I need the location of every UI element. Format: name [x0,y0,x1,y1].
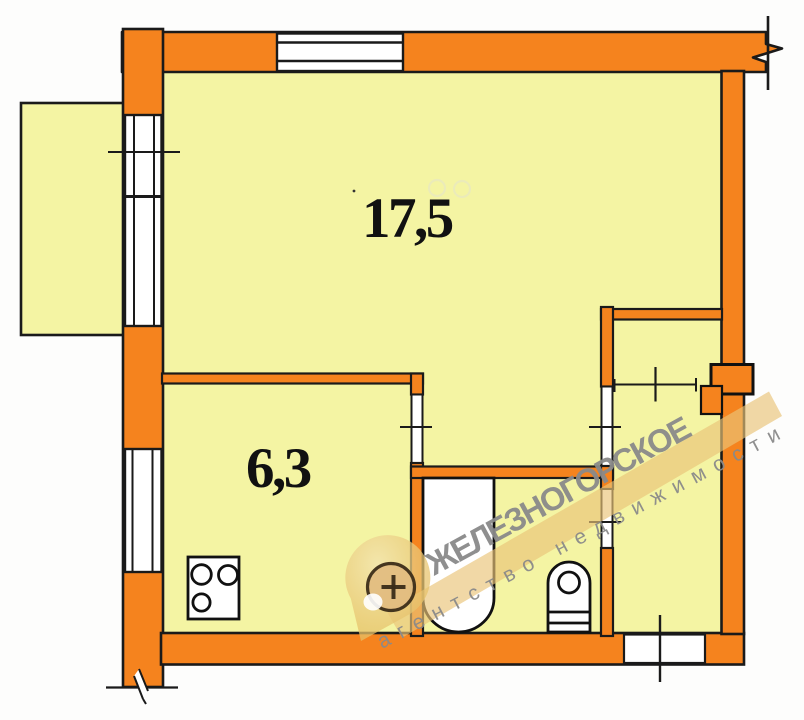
svg-text:6,3: 6,3 [246,437,311,500]
svg-text:17,5: 17,5 [362,187,453,250]
